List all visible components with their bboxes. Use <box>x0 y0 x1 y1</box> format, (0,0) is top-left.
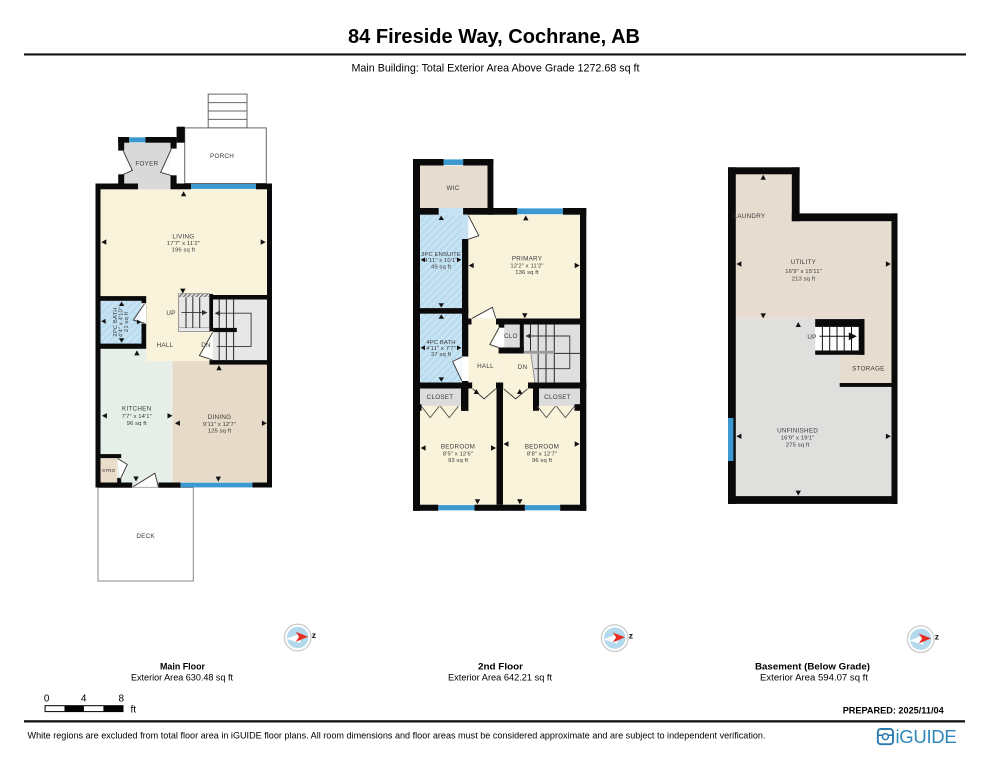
svg-text:LAUNDRY: LAUNDRY <box>734 213 766 220</box>
svg-text:17'7" x 11'2": 17'7" x 11'2" <box>167 241 200 247</box>
svg-text:iGUIDE: iGUIDE <box>896 726 957 747</box>
svg-text:Exterior Area 630.48 sq ft: Exterior Area 630.48 sq ft <box>131 673 234 683</box>
svg-text:7'7" x 14'1": 7'7" x 14'1" <box>122 414 152 420</box>
svg-text:CLOSET: CLOSET <box>544 394 571 401</box>
svg-text:84 Fireside Way, Cochrane, AB: 84 Fireside Way, Cochrane, AB <box>348 26 640 48</box>
svg-text:4: 4 <box>81 694 87 705</box>
svg-text:PRIMARY: PRIMARY <box>512 255 543 262</box>
svg-text:16'9" x 15'11": 16'9" x 15'11" <box>785 269 822 275</box>
svg-text:9'11" x 12'7": 9'11" x 12'7" <box>203 422 236 428</box>
svg-text:UP: UP <box>807 334 816 341</box>
svg-text:4'11" x 7'7": 4'11" x 7'7" <box>426 346 456 352</box>
svg-text:DN: DN <box>201 342 211 349</box>
svg-text:KITCHEN: KITCHEN <box>122 406 152 413</box>
svg-text:UNFINISHED: UNFINISHED <box>777 427 818 434</box>
svg-text:4'11" x 10'1": 4'11" x 10'1" <box>424 258 457 264</box>
svg-text:12'2" x 11'2": 12'2" x 11'2" <box>510 263 543 269</box>
svg-text:DINING: DINING <box>208 414 232 421</box>
svg-text:UTILITY: UTILITY <box>791 259 817 266</box>
svg-text:BEDROOM: BEDROOM <box>525 444 559 451</box>
svg-text:213 sq ft: 213 sq ft <box>792 277 816 283</box>
svg-text:STRG: STRG <box>102 468 116 474</box>
svg-text:37 sq ft: 37 sq ft <box>431 352 451 358</box>
svg-text:275 sq ft: 275 sq ft <box>786 443 810 449</box>
svg-text:DECK: DECK <box>136 533 155 540</box>
svg-text:STORAGE: STORAGE <box>852 366 884 373</box>
svg-text:PORCH: PORCH <box>210 153 234 160</box>
svg-text:PREPARED: 2025/11/04: PREPARED: 2025/11/04 <box>843 706 945 717</box>
svg-text:Exterior Area 642.21 sq ft: Exterior Area 642.21 sq ft <box>448 673 553 683</box>
svg-text:3PC ENSUITE: 3PC ENSUITE <box>421 252 461 258</box>
svg-text:WIC: WIC <box>447 185 460 192</box>
svg-text:DN: DN <box>518 364 528 371</box>
svg-text:125 sq ft: 125 sq ft <box>208 429 232 435</box>
svg-text:ft: ft <box>131 705 137 716</box>
svg-text:White regions are excluded fro: White regions are excluded from total fl… <box>28 731 766 741</box>
svg-text:136 sq ft: 136 sq ft <box>515 270 539 276</box>
svg-text:196 sq ft: 196 sq ft <box>172 247 196 253</box>
svg-text:16'9" x 19'1": 16'9" x 19'1" <box>781 436 815 442</box>
svg-text:0: 0 <box>44 694 50 705</box>
svg-text:8'5" x 12'6": 8'5" x 12'6" <box>443 451 473 457</box>
svg-text:96 sq ft: 96 sq ft <box>532 458 552 464</box>
svg-text:HALL: HALL <box>157 342 174 349</box>
svg-text:UP: UP <box>166 310 175 317</box>
svg-text:CLO: CLO <box>504 333 518 340</box>
svg-text:21 sq ft: 21 sq ft <box>124 312 130 332</box>
svg-text:Main Building: Total Exterior: Main Building: Total Exterior Area Above… <box>352 63 640 75</box>
svg-text:96 sq ft: 96 sq ft <box>127 421 147 427</box>
svg-text:2nd Floor: 2nd Floor <box>478 662 523 672</box>
svg-text:Basement (Below Grade): Basement (Below Grade) <box>755 662 870 672</box>
svg-text:Exterior Area 594.07 sq ft: Exterior Area 594.07 sq ft <box>760 673 869 683</box>
svg-text:93 sq ft: 93 sq ft <box>448 458 468 464</box>
svg-text:BEDROOM: BEDROOM <box>441 444 475 451</box>
svg-text:8: 8 <box>119 694 125 705</box>
svg-text:49 sq ft: 49 sq ft <box>431 264 451 270</box>
svg-text:CLOSET: CLOSET <box>427 394 454 401</box>
svg-text:FOYER: FOYER <box>135 160 158 167</box>
svg-text:Main Floor: Main Floor <box>160 662 205 672</box>
svg-text:LIVING: LIVING <box>172 233 194 240</box>
svg-text:8'8" x 12'7": 8'8" x 12'7" <box>527 451 557 457</box>
svg-text:HALL: HALL <box>477 363 494 370</box>
